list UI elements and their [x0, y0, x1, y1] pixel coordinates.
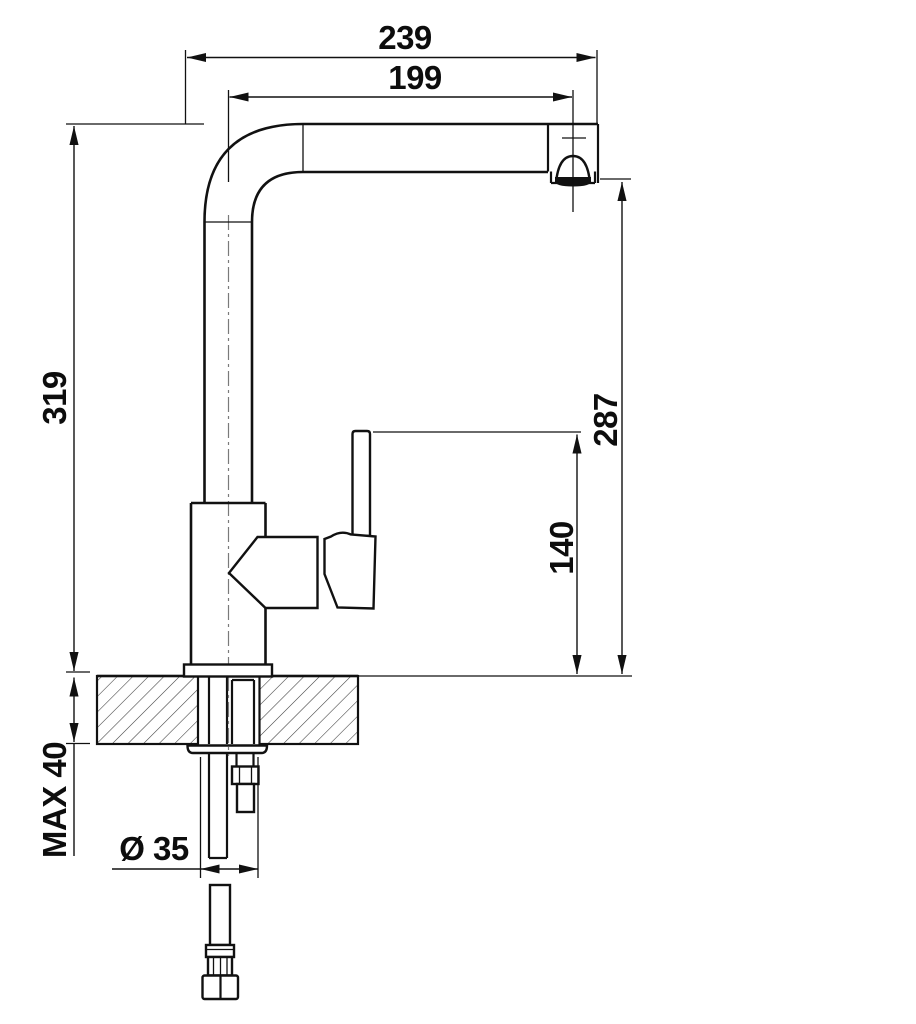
lever-rod	[353, 431, 371, 536]
shank-tube-in-hole	[209, 676, 227, 744]
under-counter-assembly	[188, 676, 268, 858]
dim-d35-label: Ø 35	[119, 830, 189, 867]
spout-outer-edge	[205, 124, 599, 503]
dimension-max-deck-thickness: MAX 40	[36, 678, 90, 859]
dim-239-label: 239	[378, 19, 432, 56]
dim-max40-label: MAX 40	[36, 742, 73, 858]
countertop-right-block	[260, 676, 359, 744]
fixing-washer	[188, 746, 268, 754]
threaded-stud-in-hole	[232, 680, 254, 744]
countertop-left-block	[97, 676, 198, 744]
hose-collar	[206, 945, 234, 957]
handle-cartridge-cap	[325, 533, 376, 609]
dimension-handle-height: 140	[373, 432, 581, 674]
dimension-total-height: 319	[36, 124, 204, 672]
technical-drawing-canvas: 239 199 319 287 140 MAX 40 Ø 35	[0, 0, 916, 1024]
shank-tube-lower	[209, 753, 227, 858]
stud-end	[237, 784, 254, 812]
dim-140-label: 140	[543, 521, 580, 575]
body-cone-neck	[229, 537, 318, 608]
countertop-section	[97, 676, 632, 744]
threaded-stud-lower	[237, 753, 254, 767]
dim-319-label: 319	[36, 371, 73, 425]
dim-287-label: 287	[587, 393, 624, 447]
dim-199-label: 199	[388, 59, 442, 96]
mounting-nut	[232, 767, 259, 785]
spout-inner-edge	[252, 172, 548, 503]
dim-199-extension-lines	[229, 90, 574, 212]
supply-hose	[203, 885, 239, 999]
faucet-dimension-drawing: 239 199 319 287 140 MAX 40 Ø 35	[0, 0, 916, 1024]
dimension-outlet-height: 287	[587, 179, 631, 674]
base-flange	[184, 665, 272, 677]
dimension-spout-reach: 199	[229, 59, 574, 212]
faucet-outline	[184, 124, 598, 677]
centerlines	[229, 138, 587, 756]
hose-tube	[210, 885, 230, 945]
dim-319-extension-lines	[66, 124, 204, 672]
